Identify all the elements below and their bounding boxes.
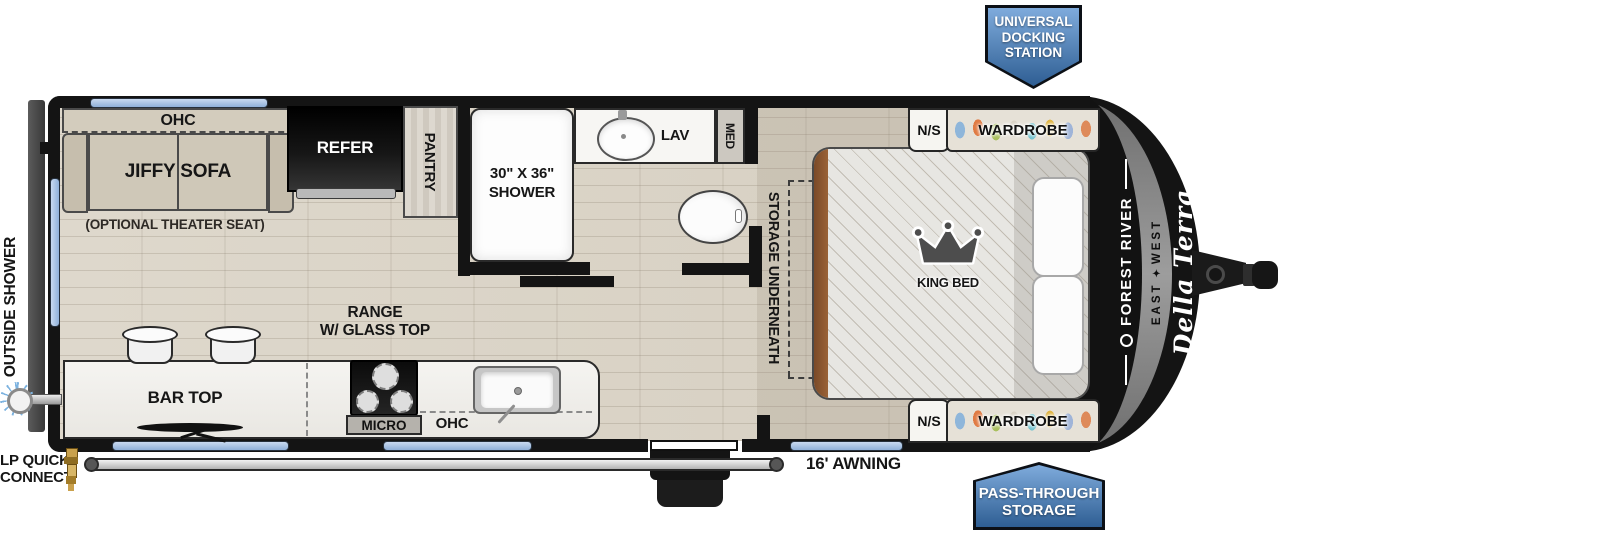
lp-quick-connect-label: LP QUICK CONNECT: [0, 452, 60, 486]
lav-label: LAV: [650, 126, 700, 144]
bar-faucet-icon: [137, 423, 243, 432]
kitchen-sink-drain: [514, 387, 522, 395]
crown-icon: [912, 220, 984, 272]
lav-drain: [621, 134, 626, 139]
forest-river-wordmark: FOREST RIVER: [1116, 122, 1136, 422]
lav-faucet-icon: [618, 110, 627, 120]
lav-sink: [597, 117, 655, 161]
range-burner-icon: [390, 390, 413, 413]
west-text: WEST: [1151, 219, 1163, 264]
window-bottom-bedroom: [790, 441, 903, 451]
nightstand-door: N/S: [908, 399, 950, 443]
optional-theater-seat-label: (OPTIONAL THEATER SEAT): [60, 215, 290, 233]
decorative-line: [1125, 159, 1127, 189]
counter-divider-dash: [306, 363, 308, 436]
jiffy-sofa-label: JIFFY SOFA: [88, 133, 268, 211]
bed-headboard: [814, 149, 828, 398]
refrigerator-handle: [296, 188, 396, 199]
storage-outline-left: [788, 180, 790, 377]
window-left-side: [50, 178, 60, 327]
king-bed-label: KING BED: [908, 274, 988, 290]
east-west-compass-icon: ✦: [1152, 269, 1163, 277]
entry-step-lower: [657, 480, 723, 507]
universal-docking-station-badge: UNIVERSAL DOCKING STATION: [985, 5, 1082, 89]
hitch-hole: [1206, 265, 1225, 284]
bar-stool-seat: [122, 326, 178, 343]
badge-text: PASS-THROUGH STORAGE: [973, 485, 1105, 519]
bath-wall-south: [458, 262, 590, 275]
med-label: MED: [724, 116, 736, 156]
east-west-wordmark: EAST ✦ WEST: [1150, 162, 1164, 382]
floorplan-canvas: OUTSIDE SHOWER LP QUICK CONNECT OHC JIFF…: [0, 0, 1600, 538]
forest-river-logo-icon: [1120, 334, 1133, 347]
sofa-ohc-label: OHC: [62, 108, 294, 133]
bath-door-panel: [520, 276, 614, 287]
microwave-label-bar: MICRO: [346, 415, 422, 435]
bed-pillow: [1032, 275, 1084, 375]
outside-shower-label: OUTSIDE SHOWER: [2, 219, 20, 395]
badge-text: UNIVERSAL DOCKING STATION: [985, 14, 1082, 61]
range-burner-icon: [372, 363, 399, 390]
window-bottom-kitchen: [383, 441, 532, 451]
storage-underneath-label: STORAGE UNDERNEATH: [765, 178, 781, 378]
pass-through-storage-badge: PASS-THROUGH STORAGE: [973, 462, 1105, 530]
bar-stool-seat: [205, 326, 261, 343]
nightstand-offdoor: N/S: [908, 108, 950, 152]
outside-shower-head-icon: [7, 388, 33, 414]
awning-end-cap: [84, 457, 99, 472]
awning-label: 16' AWNING: [806, 454, 901, 474]
decorative-line: [1125, 355, 1127, 385]
bedroom-entry-wall-stub: [757, 415, 770, 441]
wardrobe-offdoor: WARDROBE: [946, 108, 1100, 152]
della-terra-script: Della Terra: [1166, 152, 1200, 392]
bar-top-label: BAR TOP: [95, 388, 275, 408]
rear-bumper-bracket: [40, 142, 60, 154]
bath-wall-right-segment: [745, 106, 758, 164]
bath-wall-left: [458, 106, 470, 276]
wardrobe-door: WARDROBE: [946, 399, 1100, 443]
refer-label: REFER: [287, 118, 403, 178]
bed-pillow: [1032, 177, 1084, 277]
range-label: RANGEW/ GLASS TOP: [310, 303, 440, 341]
window-top-sofa: [90, 98, 268, 108]
lp-connector-icon: [64, 448, 78, 492]
shower-label: 30" X 36"SHOWER: [470, 162, 574, 204]
pantry-label: PANTRY: [422, 110, 438, 214]
east-text: EAST: [1151, 282, 1163, 325]
hitch-coupler: [1252, 261, 1278, 289]
awning-rail: [87, 458, 781, 471]
bath-wall-L-vertical: [749, 226, 762, 287]
range-burner-icon: [356, 390, 379, 413]
awning-end-cap: [769, 457, 784, 472]
sofa-arm-left: [62, 133, 88, 213]
toilet-seat-notch: [735, 209, 742, 223]
kitchen-ohc-label: OHC: [428, 414, 476, 432]
forest-river-text: FOREST RIVER: [1118, 197, 1135, 326]
entry-door: [650, 440, 738, 451]
window-bottom-bartop: [112, 441, 289, 451]
